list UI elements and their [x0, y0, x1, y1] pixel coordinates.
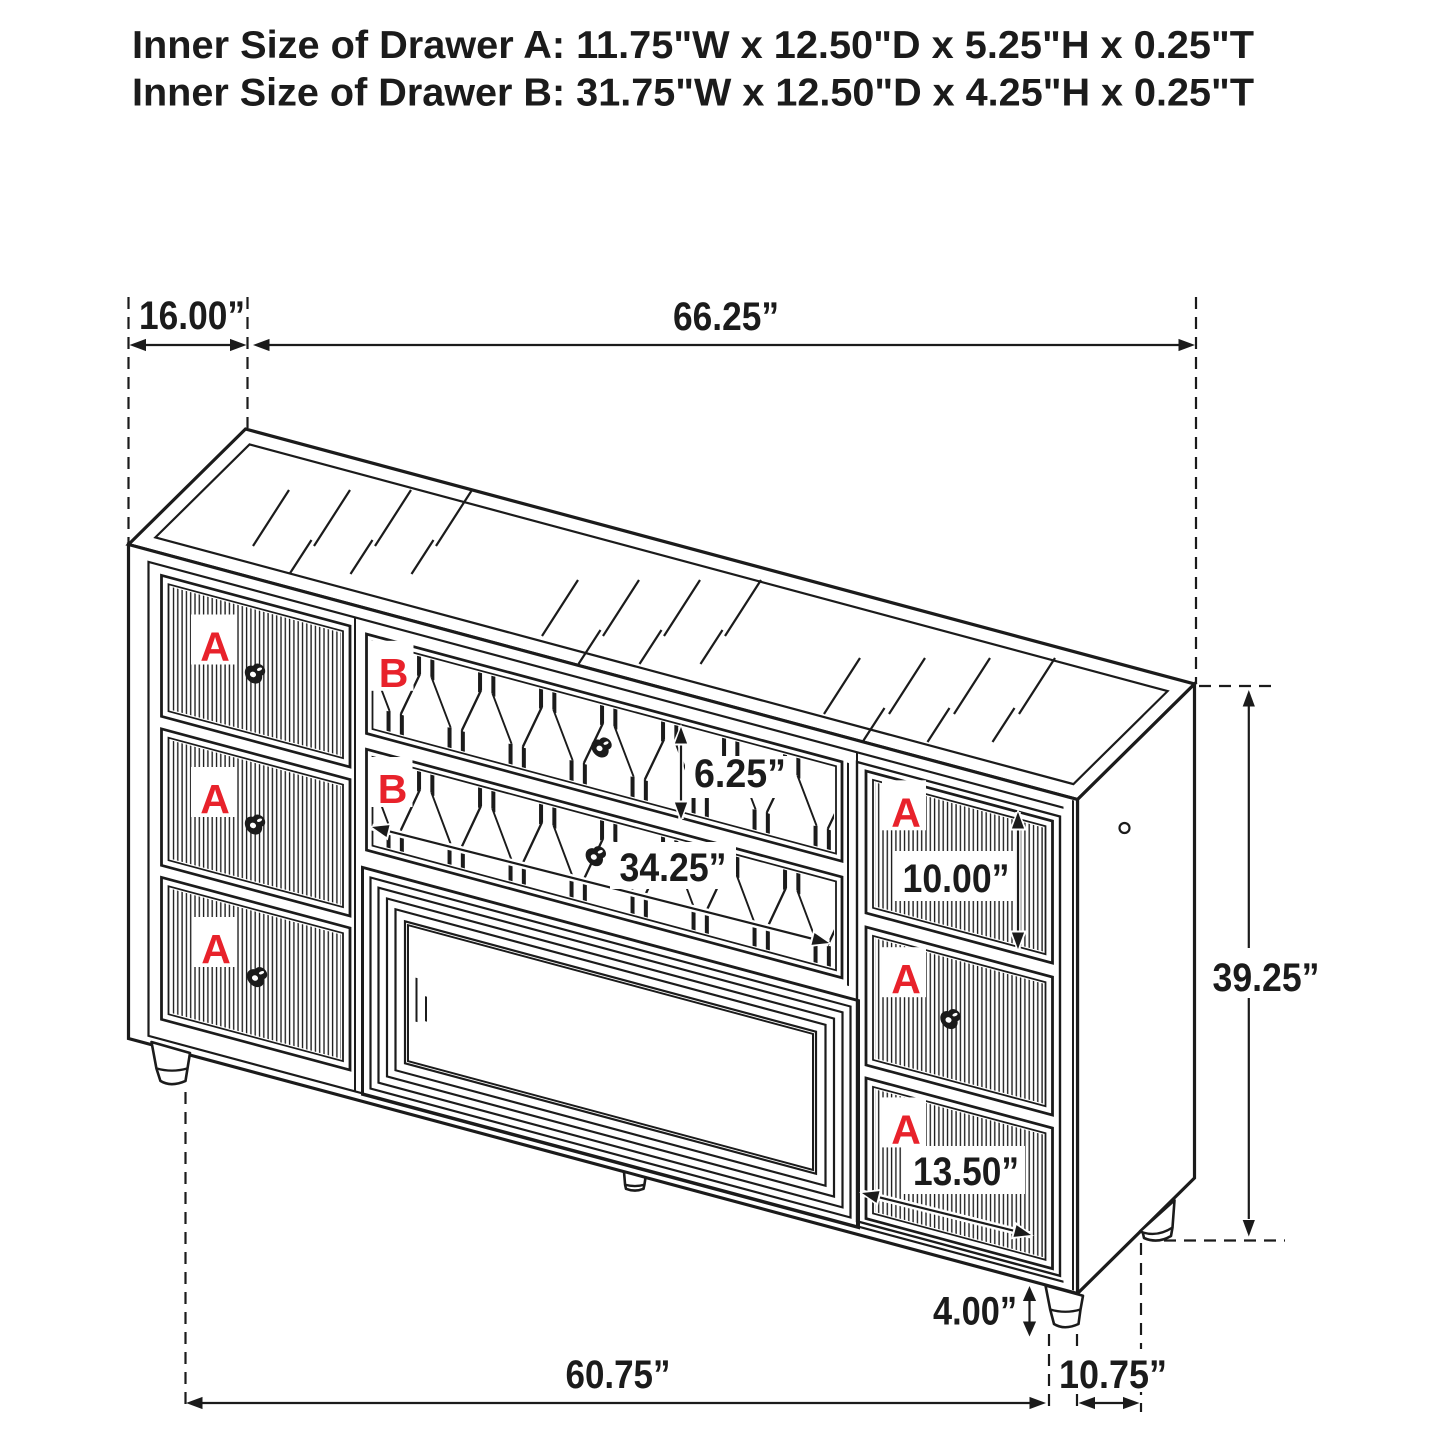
svg-text:34.25”: 34.25” — [620, 846, 727, 890]
svg-text:10.00”: 10.00” — [903, 857, 1010, 901]
svg-text:13.50”: 13.50” — [913, 1150, 1019, 1194]
svg-text:A: A — [200, 624, 230, 670]
svg-text:60.75”: 60.75” — [566, 1353, 671, 1397]
svg-text:A: A — [891, 789, 921, 835]
svg-text:B: B — [379, 650, 409, 696]
svg-text:A: A — [891, 1106, 921, 1152]
svg-text:16.00”: 16.00” — [139, 294, 245, 338]
svg-text:Inner Size of Drawer A: 11.75": Inner Size of Drawer A: 11.75"W x 12.50"… — [132, 24, 1254, 67]
svg-text:Inner Size of Drawer B: 31.75": Inner Size of Drawer B: 31.75"W x 12.50"… — [132, 72, 1254, 115]
svg-text:B: B — [378, 766, 408, 812]
svg-text:6.25”: 6.25” — [694, 752, 786, 796]
svg-text:39.25”: 39.25” — [1213, 956, 1320, 1000]
svg-text:4.00”: 4.00” — [933, 1290, 1017, 1334]
svg-text:A: A — [200, 776, 230, 822]
svg-text:A: A — [891, 956, 921, 1002]
svg-text:10.75”: 10.75” — [1059, 1353, 1167, 1397]
svg-text:A: A — [201, 926, 231, 972]
svg-text:66.25”: 66.25” — [673, 295, 779, 339]
